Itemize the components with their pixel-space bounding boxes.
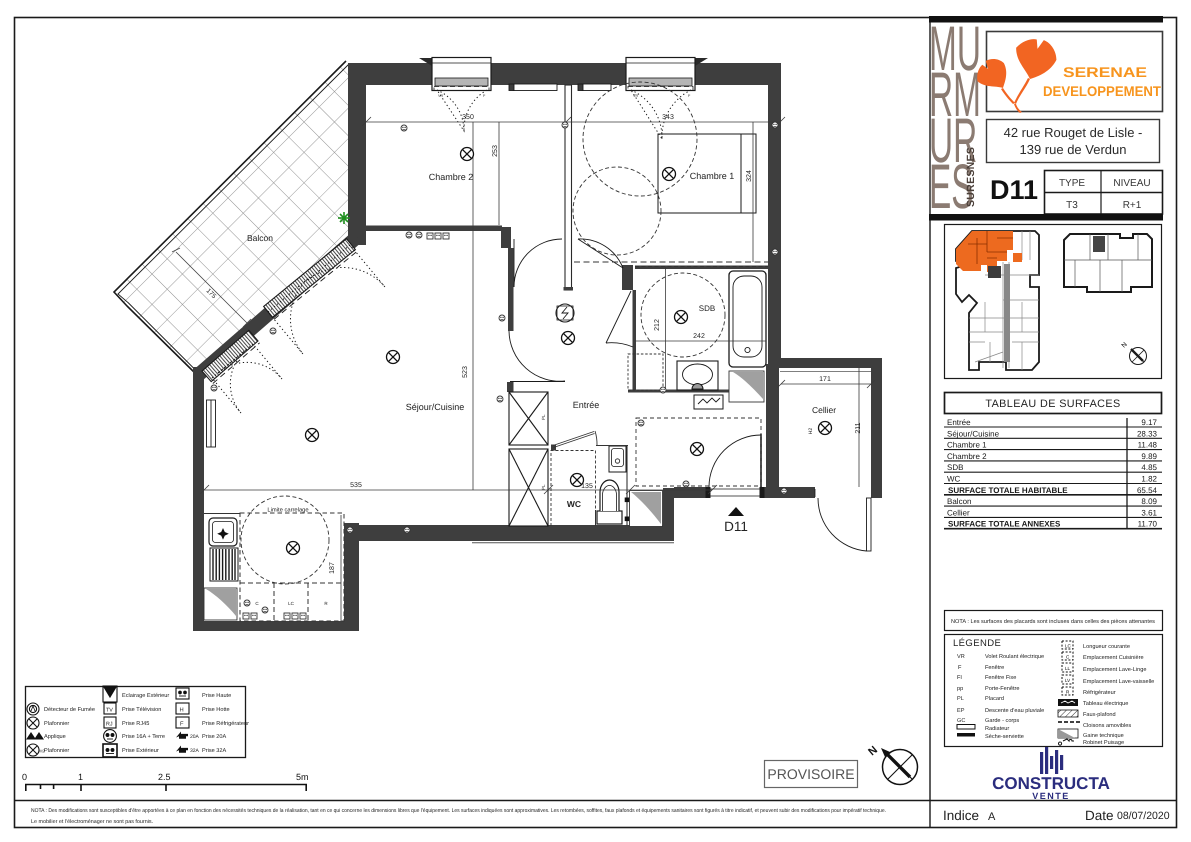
svg-text:Emplacement Lave-Linge: Emplacement Lave-Linge [1083, 666, 1146, 673]
svg-text:Balcon: Balcon [947, 497, 971, 506]
svg-text:Prise Télévision: Prise Télévision [122, 706, 161, 713]
svg-text:Prise Hotte: Prise Hotte [202, 706, 230, 713]
svg-text:Chambre 2: Chambre 2 [429, 172, 474, 182]
svg-text:Descente d'eau pluviale: Descente d'eau pluviale [985, 707, 1044, 714]
svg-text:11.48: 11.48 [1138, 441, 1158, 450]
svg-text:H2: H2 [808, 428, 814, 435]
svg-text:Prise 20A: Prise 20A [202, 733, 227, 740]
svg-text:F: F [180, 722, 184, 728]
svg-text:F: F [958, 665, 962, 671]
svg-text:LV: LV [1065, 678, 1070, 683]
svg-text:VENTE: VENTE [1032, 791, 1070, 801]
svg-text:Faux-plafond: Faux-plafond [1083, 711, 1116, 718]
svg-text:Plafonnier: Plafonnier [44, 720, 69, 727]
svg-text:9.17: 9.17 [1141, 418, 1157, 427]
svg-text:171: 171 [819, 376, 831, 383]
svg-text:LC: LC [1065, 644, 1072, 649]
svg-text:65.54: 65.54 [1137, 486, 1158, 495]
svg-text:535: 535 [350, 482, 362, 489]
svg-text:1: 1 [78, 772, 83, 782]
svg-text:FI: FI [957, 675, 962, 681]
svg-text:Prise 16A + Terre: Prise 16A + Terre [122, 733, 165, 740]
svg-text:TV: TV [106, 708, 113, 714]
svg-text:pp: pp [957, 686, 963, 692]
svg-text:D11: D11 [990, 175, 1038, 205]
svg-text:T3: T3 [1066, 200, 1078, 211]
svg-text:VR: VR [957, 654, 965, 660]
svg-text:Chambre 1: Chambre 1 [690, 171, 735, 181]
svg-text:Réfrigérateur: Réfrigérateur [1083, 689, 1116, 696]
svg-text:Chambre 1: Chambre 1 [947, 441, 987, 450]
svg-text:187: 187 [329, 562, 336, 574]
svg-text:RJ: RJ [106, 722, 113, 728]
svg-text:Fenêtre: Fenêtre [985, 664, 1004, 671]
svg-text:Sèche-serviette: Sèche-serviette [985, 733, 1024, 740]
svg-text:SDB: SDB [947, 463, 963, 472]
svg-text:242: 242 [693, 333, 705, 340]
svg-text:Fenêtre Fixe: Fenêtre Fixe [985, 674, 1016, 681]
svg-text:PL: PL [541, 414, 546, 420]
svg-text:A: A [988, 811, 996, 823]
svg-text:32A: 32A [190, 748, 200, 754]
svg-text:EP: EP [957, 708, 965, 714]
svg-text:139 rue de Verdun: 139 rue de Verdun [1020, 142, 1127, 157]
svg-text:1.82: 1.82 [1141, 475, 1157, 484]
svg-text:Prise 32A: Prise 32A [202, 747, 227, 754]
svg-text:Cellier: Cellier [947, 508, 970, 517]
svg-text:135: 135 [581, 483, 593, 490]
svg-text:Garde - corps: Garde - corps [985, 717, 1019, 724]
svg-text:2.5: 2.5 [158, 772, 171, 782]
svg-text:Tableau électrique: Tableau électrique [1083, 700, 1128, 707]
svg-text:LÉGENDE: LÉGENDE [953, 637, 1001, 649]
svg-text:Balcon: Balcon [247, 233, 273, 243]
svg-text:NOTA : Les surfaces des placa: NOTA : Les surfaces des placards sont in… [951, 618, 1155, 625]
svg-text:NOTA : Des modifications son: NOTA : Des modifications sont susceptibl… [31, 808, 886, 814]
svg-text:4.85: 4.85 [1141, 463, 1157, 472]
svg-text:Le mobilier et l'électroménage: Le mobilier et l'électroménager ne sont … [31, 819, 153, 825]
svg-text:Robinet Puisage: Robinet Puisage [1083, 739, 1124, 746]
svg-text:PROVISOIRE: PROVISOIRE [767, 766, 854, 782]
svg-text:Porte-Fenêtre: Porte-Fenêtre [985, 685, 1020, 692]
svg-text:D11: D11 [724, 519, 748, 534]
svg-text:WC: WC [567, 499, 581, 509]
svg-text:28.33: 28.33 [1137, 429, 1158, 438]
svg-text:Plafonnier: Plafonnier [44, 747, 69, 754]
svg-text:PL: PL [541, 484, 546, 490]
svg-text:42 rue Rouget de Lisle -: 42 rue Rouget de Lisle - [1004, 125, 1143, 140]
svg-text:Entrée: Entrée [947, 418, 971, 427]
svg-text:SURFACE TOTALE ANNEXES: SURFACE TOTALE ANNEXES [948, 520, 1061, 529]
svg-text:DEVELOPPEMENT: DEVELOPPEMENT [1043, 83, 1161, 99]
svg-text:8.09: 8.09 [1141, 497, 1157, 506]
svg-text:Prise RJ45: Prise RJ45 [122, 720, 149, 727]
svg-text:TABLEAU DE SURFACES: TABLEAU DE SURFACES [985, 398, 1120, 410]
svg-text:20A: 20A [190, 734, 200, 740]
svg-text:523: 523 [462, 366, 469, 378]
svg-text:Longueur courante: Longueur courante [1083, 644, 1130, 650]
svg-text:08/07/2020: 08/07/2020 [1117, 810, 1170, 822]
svg-text:Gaine technique: Gaine technique [1083, 732, 1124, 739]
svg-text:Détecteur de Fumée: Détecteur de Fumée [44, 706, 95, 713]
svg-text:Placard: Placard [985, 695, 1004, 702]
svg-text:H2: H2 [40, 749, 46, 754]
svg-text:TYPE: TYPE [1059, 178, 1085, 189]
svg-text:Entrée: Entrée [573, 400, 600, 410]
svg-text:SERENAE: SERENAE [1063, 64, 1147, 80]
svg-text:Cloisons amovibles: Cloisons amovibles [1083, 722, 1131, 729]
svg-text:Prise Réfrigérateur: Prise Réfrigérateur [202, 720, 249, 727]
svg-text:GC: GC [957, 718, 965, 724]
svg-text:SDB: SDB [699, 304, 715, 313]
svg-text:Volet Roulant électrique: Volet Roulant électrique [985, 653, 1044, 660]
svg-text:Emplacement Cuisinière: Emplacement Cuisinière [1083, 654, 1144, 661]
svg-text:Cellier: Cellier [812, 405, 836, 415]
svg-text:Limite carrelage: Limite carrelage [267, 507, 308, 514]
svg-text:WC: WC [947, 475, 961, 484]
svg-text:9.89: 9.89 [1141, 452, 1157, 461]
svg-text:Applique: Applique [44, 733, 66, 740]
svg-text:350: 350 [462, 114, 474, 121]
svg-text:324: 324 [746, 170, 753, 182]
svg-text:Radiateur: Radiateur [985, 725, 1009, 732]
svg-text:Prise Haute: Prise Haute [202, 692, 231, 699]
svg-text:NIVEAU: NIVEAU [1113, 178, 1150, 189]
svg-text:253: 253 [492, 145, 499, 157]
svg-text:SURESNES: SURESNES [965, 147, 977, 207]
svg-text:Eclairage Extérieur: Eclairage Extérieur [122, 692, 169, 699]
svg-text:Emplacement Lave-vaisselle: Emplacement Lave-vaisselle [1083, 678, 1154, 685]
svg-text:Date: Date [1085, 808, 1114, 823]
svg-text:11.70: 11.70 [1138, 520, 1158, 529]
svg-text:SURFACE TOTALE HABITABLE: SURFACE TOTALE HABITABLE [948, 486, 1068, 495]
svg-text:3.61: 3.61 [1141, 508, 1157, 517]
svg-text:Chambre 2: Chambre 2 [947, 452, 987, 461]
svg-text:Prise Extérieur: Prise Extérieur [122, 747, 159, 754]
svg-text:343: 343 [662, 114, 674, 121]
svg-text:Séjour/Cuisine: Séjour/Cuisine [406, 402, 465, 412]
svg-text:5m: 5m [296, 772, 309, 782]
svg-text:0: 0 [22, 772, 27, 782]
svg-text:Indice: Indice [943, 808, 979, 823]
svg-text:212: 212 [654, 319, 661, 331]
svg-text:LL: LL [1065, 666, 1071, 671]
svg-text:R+1: R+1 [1123, 200, 1142, 211]
svg-text:211: 211 [855, 422, 862, 433]
svg-text:Séjour/Cuisine: Séjour/Cuisine [947, 429, 1000, 438]
svg-text:LC: LC [288, 601, 295, 606]
svg-text:H: H [180, 708, 184, 714]
svg-text:PL: PL [957, 696, 964, 702]
